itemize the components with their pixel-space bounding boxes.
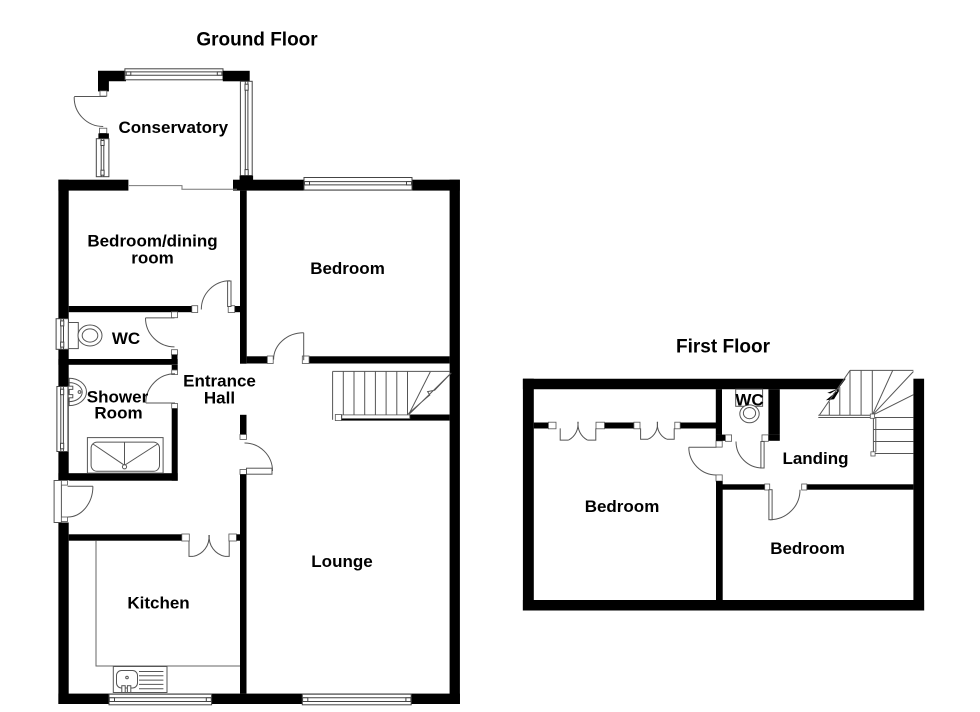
svg-text:Ground Floor: Ground Floor xyxy=(196,30,318,51)
svg-text:Kitchen: Kitchen xyxy=(127,594,189,613)
svg-text:Landing: Landing xyxy=(782,449,848,468)
svg-text:First Floor: First Floor xyxy=(676,337,771,358)
svg-text:WC: WC xyxy=(735,391,763,410)
svg-text:Hall: Hall xyxy=(204,389,235,408)
svg-text:Lounge: Lounge xyxy=(311,552,372,571)
svg-text:Conservatory: Conservatory xyxy=(118,118,228,137)
svg-text:Bedroom: Bedroom xyxy=(585,497,660,516)
svg-text:room: room xyxy=(131,249,174,268)
svg-text:Bedroom: Bedroom xyxy=(770,539,845,558)
svg-text:WC: WC xyxy=(112,329,140,348)
svg-text:Room: Room xyxy=(94,404,142,423)
svg-text:Bedroom: Bedroom xyxy=(310,259,385,278)
